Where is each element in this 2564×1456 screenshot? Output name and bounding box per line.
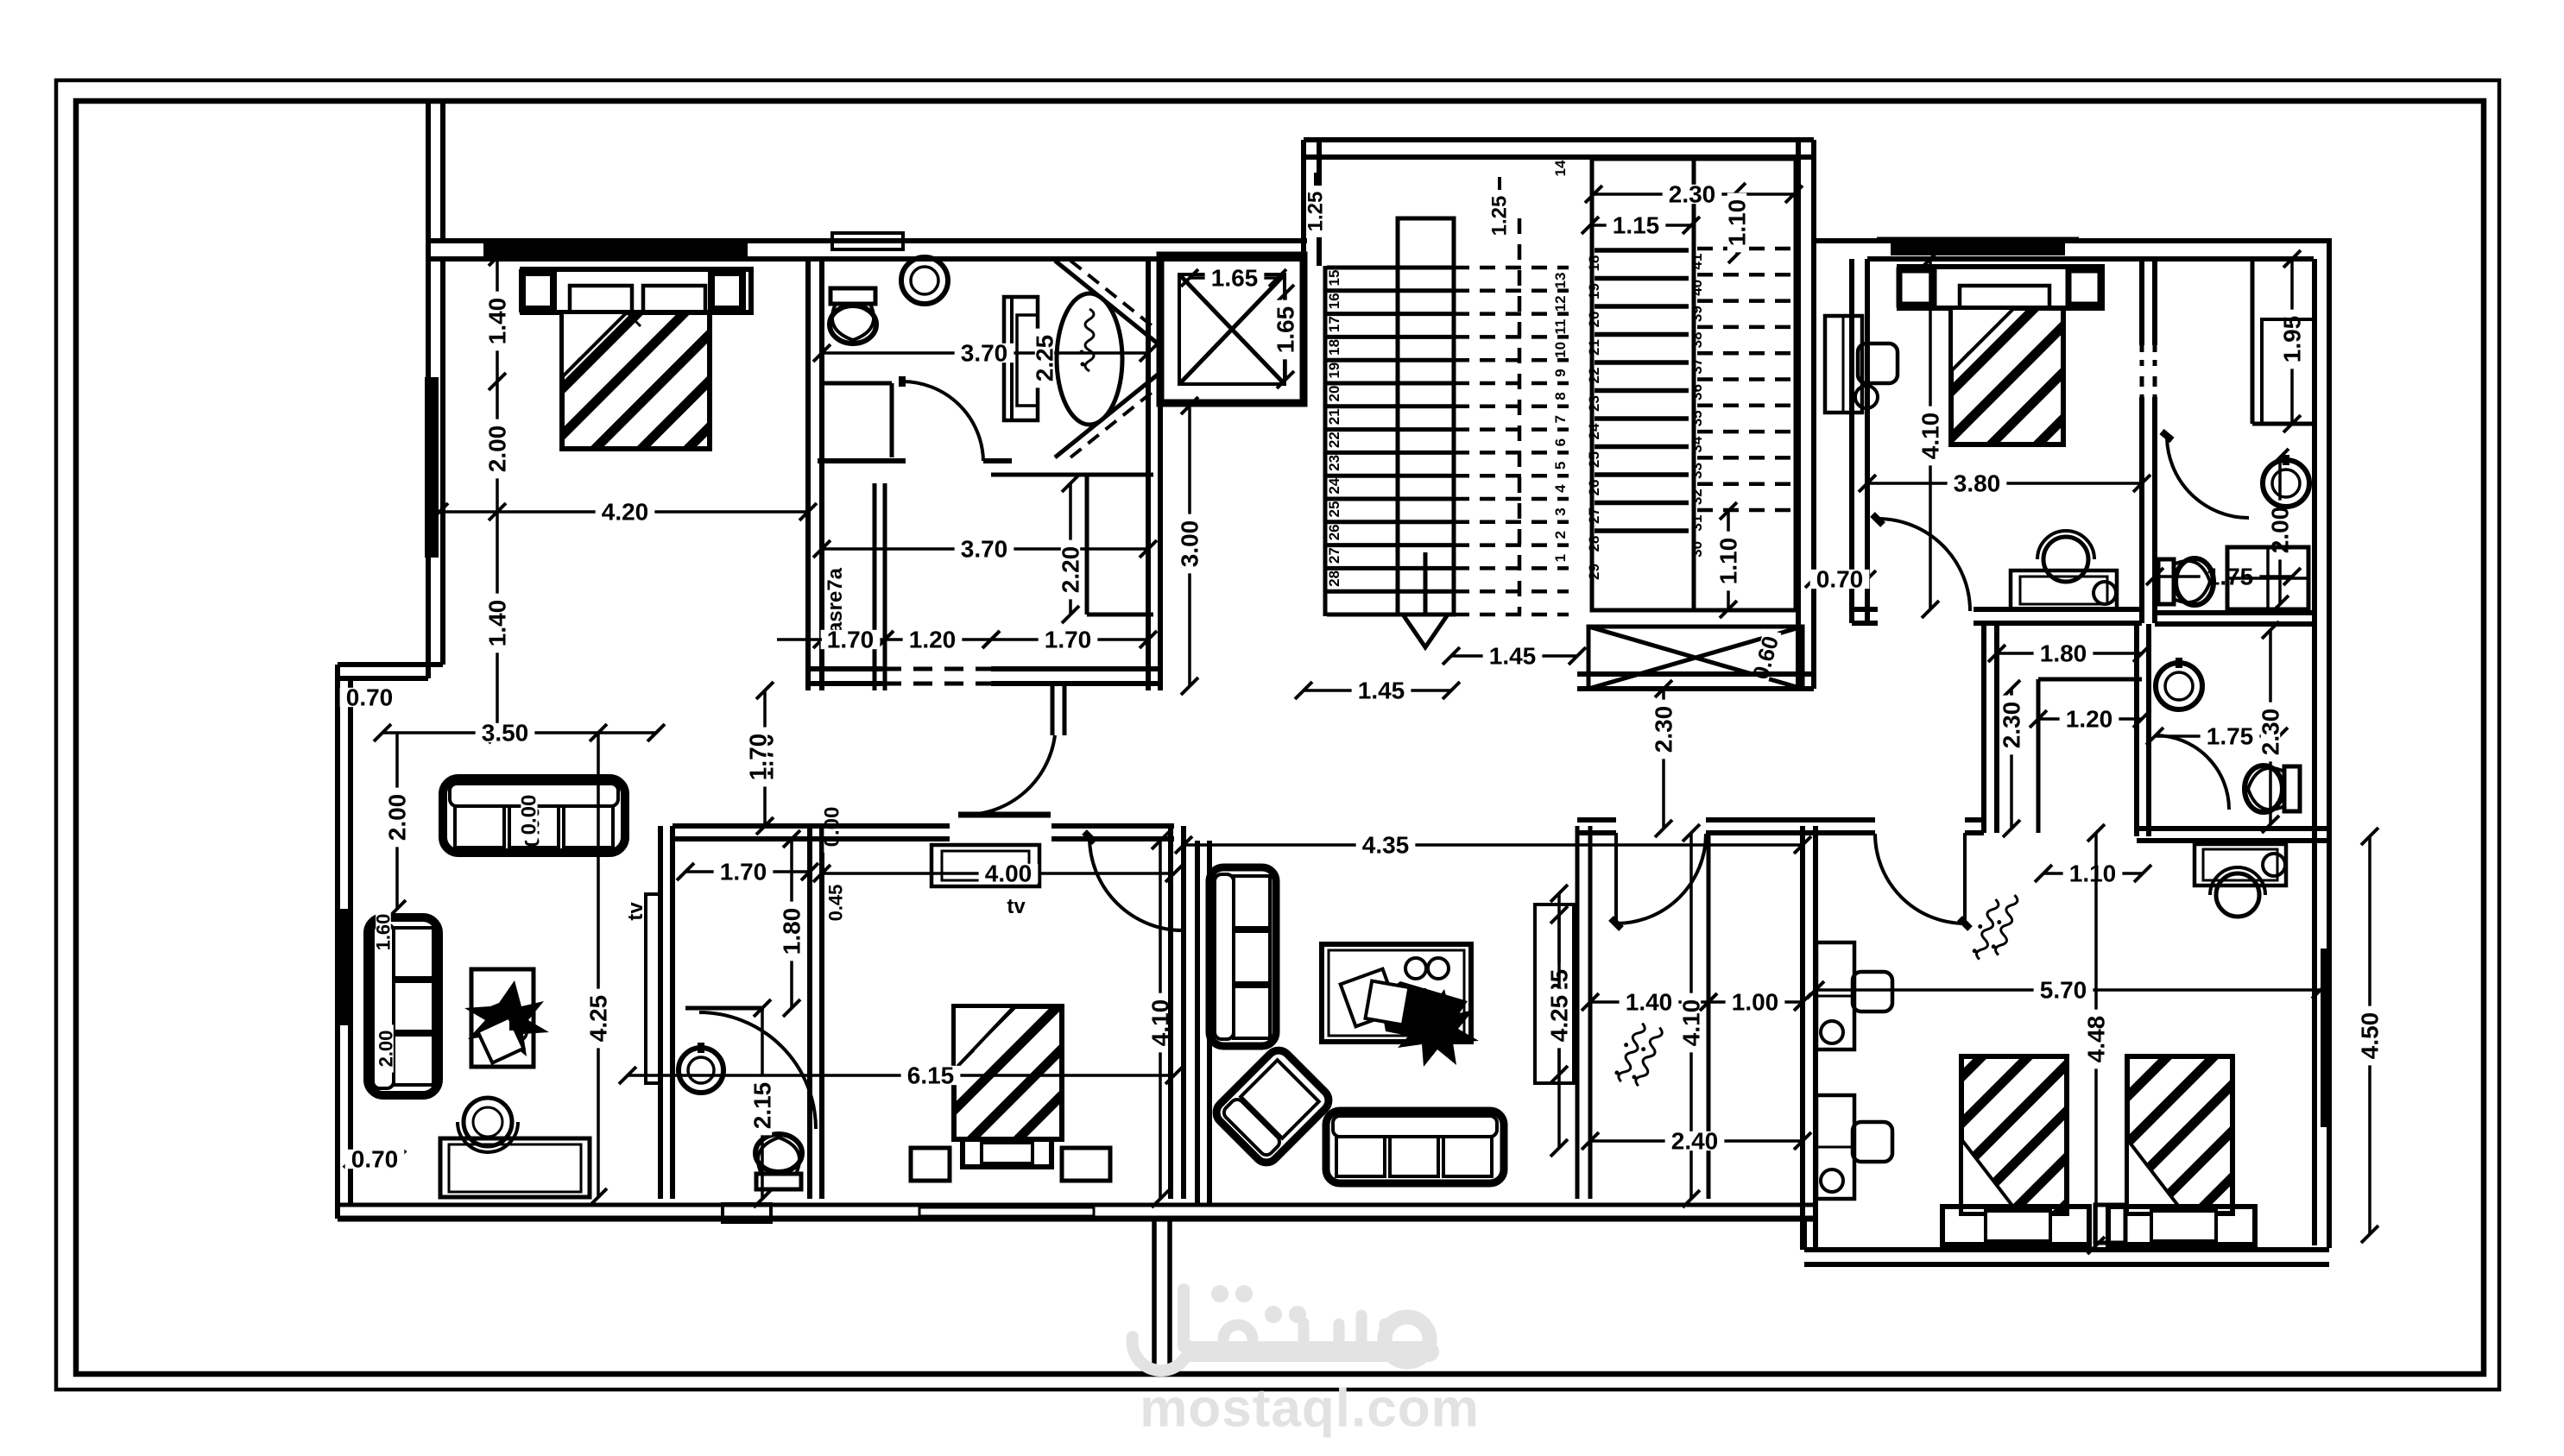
svg-text:25: 25 — [1586, 451, 1602, 468]
svg-text:5.70: 5.70 — [2040, 977, 2087, 1004]
svg-text:28: 28 — [1586, 536, 1602, 552]
svg-text:39: 39 — [1689, 306, 1705, 322]
svg-text:27: 27 — [1586, 507, 1602, 524]
svg-text:1.80: 1.80 — [2040, 640, 2087, 667]
svg-text:15: 15 — [1326, 270, 1342, 287]
svg-text:11: 11 — [1552, 319, 1569, 335]
svg-text:26: 26 — [1586, 480, 1602, 496]
svg-text:0.70: 0.70 — [1816, 566, 1864, 593]
svg-text:22: 22 — [1326, 432, 1342, 448]
svg-text:27: 27 — [1326, 547, 1342, 564]
svg-text:14: 14 — [1552, 160, 1569, 176]
svg-text:0.45: 0.45 — [825, 885, 847, 922]
svg-text:3.00: 3.00 — [1177, 520, 1203, 568]
svg-text:23: 23 — [1326, 455, 1342, 471]
svg-text:24: 24 — [1326, 477, 1342, 494]
svg-text:2.15: 2.15 — [749, 1082, 776, 1130]
svg-text:2.30: 2.30 — [2258, 709, 2284, 756]
svg-text:1: 1 — [1552, 554, 1569, 562]
svg-text:4.48: 4.48 — [2083, 1016, 2110, 1063]
svg-text:22: 22 — [1586, 368, 1602, 384]
svg-text:2.00: 2.00 — [376, 1031, 397, 1068]
svg-text:2.40: 2.40 — [1671, 1128, 1719, 1155]
svg-text:2.00: 2.00 — [384, 794, 411, 841]
svg-text:4.25: 4.25 — [585, 995, 612, 1043]
svg-text:8: 8 — [1552, 392, 1569, 400]
svg-text:6.15: 6.15 — [907, 1062, 955, 1089]
svg-text:19: 19 — [1586, 283, 1602, 299]
svg-text:1.40: 1.40 — [484, 298, 511, 345]
svg-text:3.50: 3.50 — [482, 720, 529, 747]
svg-text:2: 2 — [1552, 531, 1569, 539]
svg-text:0.70: 0.70 — [346, 684, 394, 711]
svg-text:4.00: 4.00 — [985, 860, 1033, 887]
svg-text:24: 24 — [1586, 423, 1602, 439]
svg-text:2.30: 2.30 — [1651, 706, 1677, 753]
svg-text:17: 17 — [1326, 316, 1342, 332]
svg-text:37: 37 — [1689, 358, 1705, 375]
svg-text:30: 30 — [1689, 541, 1705, 558]
svg-text:41: 41 — [1689, 254, 1705, 270]
svg-text:7: 7 — [1552, 415, 1569, 423]
svg-text:tv: tv — [624, 902, 647, 921]
svg-text:1.70: 1.70 — [1045, 627, 1092, 653]
svg-text:18: 18 — [1326, 339, 1342, 356]
svg-text:31: 31 — [1689, 515, 1705, 532]
svg-text:3: 3 — [1552, 507, 1569, 515]
svg-text:2.20: 2.20 — [1058, 546, 1084, 594]
svg-text:1.70: 1.70 — [745, 734, 772, 781]
svg-text:0.00: 0.00 — [518, 795, 541, 835]
svg-text:1.20: 1.20 — [909, 627, 957, 653]
svg-text:3.70: 3.70 — [961, 340, 1008, 367]
svg-text:4.20: 4.20 — [602, 499, 649, 526]
svg-text:4.50: 4.50 — [2357, 1012, 2384, 1060]
svg-text:1.75: 1.75 — [2207, 723, 2254, 750]
svg-text:2.00: 2.00 — [484, 425, 511, 473]
svg-text:2.25: 2.25 — [1032, 335, 1058, 382]
svg-text:1.70: 1.70 — [827, 627, 875, 653]
svg-text:5: 5 — [1552, 462, 1569, 470]
svg-text:12: 12 — [1552, 295, 1569, 312]
svg-text:1.20: 1.20 — [2066, 706, 2113, 733]
svg-text:28: 28 — [1326, 570, 1342, 587]
svg-text:20: 20 — [1586, 312, 1602, 328]
svg-text:36: 36 — [1689, 384, 1705, 400]
svg-text:40: 40 — [1689, 280, 1705, 296]
svg-text:29: 29 — [1586, 564, 1602, 580]
svg-text:1.40: 1.40 — [1626, 989, 1673, 1016]
svg-text:23: 23 — [1586, 395, 1602, 412]
svg-text:1.25: 1.25 — [1304, 192, 1328, 232]
svg-text:1.65: 1.65 — [1211, 265, 1259, 292]
svg-text:2.30: 2.30 — [1669, 181, 1716, 208]
svg-text:1.95: 1.95 — [2279, 316, 2306, 363]
svg-text:1.70: 1.70 — [720, 859, 767, 886]
svg-text:mostaql.com: mostaql.com — [1140, 1379, 1479, 1439]
svg-text:21: 21 — [1586, 339, 1602, 356]
svg-text:3.80: 3.80 — [1954, 470, 2001, 497]
svg-text:13: 13 — [1552, 273, 1569, 289]
svg-text:18: 18 — [1586, 255, 1602, 272]
svg-text:35: 35 — [1689, 410, 1705, 426]
svg-text:19: 19 — [1326, 362, 1342, 379]
svg-text:32: 32 — [1689, 488, 1705, 505]
svg-text:10: 10 — [1552, 342, 1569, 358]
svg-text:16: 16 — [1326, 293, 1342, 309]
svg-text:34: 34 — [1689, 436, 1705, 452]
svg-text:2.30: 2.30 — [1999, 702, 2025, 749]
svg-text:1.00: 1.00 — [1732, 989, 1779, 1016]
svg-text:1.10: 1.10 — [1715, 538, 1742, 585]
svg-text:9: 9 — [1552, 369, 1569, 376]
svg-text:1.25: 1.25 — [1488, 196, 1512, 236]
svg-text:20: 20 — [1326, 386, 1342, 402]
svg-text:25: 25 — [1326, 501, 1342, 518]
svg-text:1.80: 1.80 — [779, 908, 805, 955]
svg-text:4.10: 4.10 — [1678, 999, 1705, 1047]
svg-text:tv: tv — [1007, 895, 1026, 918]
svg-text:38: 38 — [1689, 331, 1705, 348]
svg-text:1.65: 1.65 — [1273, 306, 1299, 354]
svg-text:1.45: 1.45 — [1489, 643, 1537, 670]
svg-text:4: 4 — [1552, 484, 1569, 493]
svg-text:21: 21 — [1326, 408, 1342, 425]
svg-text:1.45: 1.45 — [1358, 678, 1405, 704]
svg-text:1.60: 1.60 — [373, 914, 395, 951]
svg-text:0.70: 0.70 — [351, 1146, 399, 1173]
svg-text:1.10: 1.10 — [2069, 860, 2117, 887]
svg-text:1.40: 1.40 — [484, 600, 511, 647]
svg-text:4.35: 4.35 — [1362, 832, 1410, 859]
svg-text:1.10: 1.10 — [1724, 199, 1751, 247]
svg-text:26: 26 — [1326, 524, 1342, 540]
svg-text:1.15: 1.15 — [1613, 212, 1660, 239]
svg-text:4.25: 4.25 — [1546, 995, 1573, 1043]
svg-text:3.70: 3.70 — [961, 536, 1008, 563]
svg-text:6: 6 — [1552, 438, 1569, 446]
svg-text:33: 33 — [1689, 463, 1705, 479]
svg-text:4.10: 4.10 — [1917, 413, 1944, 460]
